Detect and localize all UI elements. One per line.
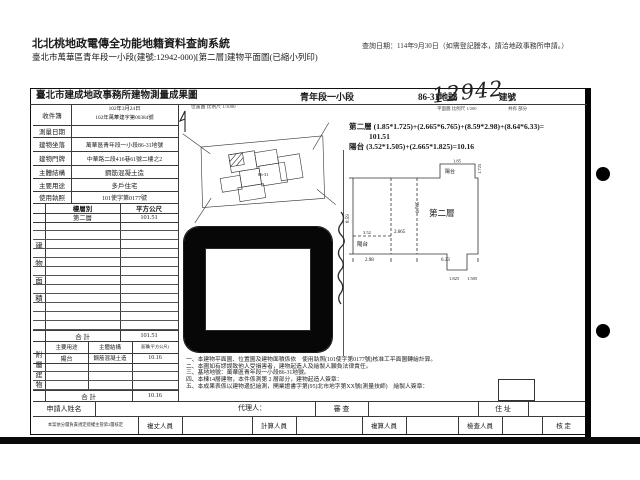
annex-row-area: 10.16 [132,353,178,363]
receipt-date: 102年3月24日 [71,105,178,114]
redacted-area [184,227,332,352]
binder-dot-bottom [596,324,610,338]
dim-small: 1.825 [449,276,460,281]
table-line [406,416,407,434]
calc-line-1: 第二層 (1.85*1.725)+(2.665*6.765)+(8.59*2.9… [349,123,544,132]
agent-label: 代理人： [238,404,266,412]
staff-resurvey-label: 複丈人員 [138,416,182,434]
dim-mid-width: 2.665 [394,230,406,235]
table-line [182,416,183,434]
approval-delegation-note: 本案依分層負責規定授權主管第2層核定 [33,416,138,434]
floor-total-label: 合 計 [45,330,120,341]
dim-balcony-width: 3.52 [363,230,371,235]
info-value-license: 101使字第0177號 [71,191,178,203]
signature-box [498,379,535,401]
dim-bottom-left: 2.98 [365,258,374,263]
annex-row-use: 陽台 [45,353,88,363]
dim-notch-height: 1.725 [477,163,482,174]
location-map-caption: 位置圖 比例尺 1/1000 [191,105,236,111]
staff-calc-label: 計算人員 [252,416,296,434]
system-title: 北北桃地政電傳全功能地籍資料查詢系統 [32,38,230,51]
info-value-receipt: 102年3月24日 102年萬華建字第00384號 [71,105,178,125]
table-line [178,104,179,401]
plan-room-label: 第二層 [429,208,455,218]
info-label-structure: 主體結構 [33,165,71,178]
table-line [296,416,297,434]
table-line [502,416,503,434]
doc-subtitle: 臺北市萬華區青年段一小段(建號:12942-000)[第二層]建物平面圖(已縮小… [32,53,318,63]
annex-empty-rows [33,363,178,390]
calc-line-3: 陽台 (3.52*1.505)+(2.665*1.825)=10.16 [349,143,474,152]
area-col-header: 平方公尺 [120,203,178,213]
annex-header-area: 面積(平方公尺) [132,341,178,353]
info-value-doorplate: 中華路二段416巷61號二樓之2 [71,151,178,165]
floor-empty-rows [33,222,178,330]
info-label-use: 主要用途 [33,178,71,191]
binder-dot-top [596,167,610,181]
approval-label: 核 定 [542,416,585,434]
calc-line-2: 101.51 [369,133,390,142]
plan-balcony-left-label: 陽台 [357,240,369,248]
receipt-number: 102年萬華建字第00384號 [71,114,178,123]
dim-notch-width: 1.85 [453,159,462,164]
form-title: 臺北市建成地政事務所建物測量成果圖 [36,91,198,102]
annex-total-label: 合 計 [45,390,132,401]
info-label-location: 建物坐落 [33,137,71,151]
table-line [368,401,369,416]
annex-header-use: 主要用途 [45,341,88,353]
share-label: 共有 部分 [508,106,527,111]
info-label-doorplate: 建物門牌 [33,151,71,165]
query-date: 查詢日期：114年9月30日（如需登記謄本，請洽地政事務所申請。） [362,42,568,50]
scanned-survey-document-page: 北北桃地政電傳全功能地籍資料查詢系統 查詢日期：114年9月30日（如需登記謄本… [0,0,640,480]
cadastral-sketch: 86-31 [180,112,342,228]
info-value-location: 萬華區青年段一小段86-31地號 [71,137,178,151]
dim-bottom-right: 6.33 [441,258,450,263]
floor-total-value: 101.51 [120,330,178,341]
info-label-receipt: 收件簿 [33,104,71,125]
floor-plan-drawing: 第二層 陽台 陽台 8.59 2.98 6.33 2.665 6.765 1.8… [345,158,580,303]
plan-balcony-top-label: 陽台 [445,168,455,175]
scan-bottom-edge [0,437,640,444]
applicant-name-label: 申請人姓名 [33,401,95,416]
dim-left: 8.59 [346,214,351,223]
address-label: 住 址 [478,401,528,416]
note-1: 一、本建物平面圖、位置圖及建物面積係依 使用執照(101使字第0177號)核准工… [186,357,586,364]
annex-header-structure: 主體結構 [88,341,132,353]
annex-total-value: 10.16 [132,390,178,401]
floor-row-area: 101.51 [120,213,178,222]
floor-row-name: 第二層 [45,213,120,222]
table-line [95,401,96,416]
annex-row-structure: 鋼筋混凝土造 [88,353,132,363]
dim-lower-notch: 1.505 [467,276,478,281]
review-label: 審 查 [315,401,368,416]
info-value-use: 多戶住宅 [71,178,178,191]
floor-col-header: 樓層別 [45,203,120,213]
staff-inspect-label: 檢查人員 [458,416,502,434]
handwritten-building-number-label: 建號 [499,93,516,103]
plan-scale-label: 平面圖 比例尺 1/200 [437,106,477,111]
staff-recheck-label: 複算人員 [362,416,406,434]
info-label-survey-date: 測量日期 [33,125,71,137]
table-line [528,401,529,416]
info-value-structure: 鋼筋混凝土造 [71,165,178,178]
note-3: 三、基地地號：萬華區青年段一小段86-31地號。 [186,370,586,377]
info-label-license: 使用執照 [33,191,71,203]
map-parcel-label: 86-31 [258,172,269,177]
dim-mid-height: 6.765 [416,201,421,213]
form-section: 青年段一小段 [300,92,354,102]
